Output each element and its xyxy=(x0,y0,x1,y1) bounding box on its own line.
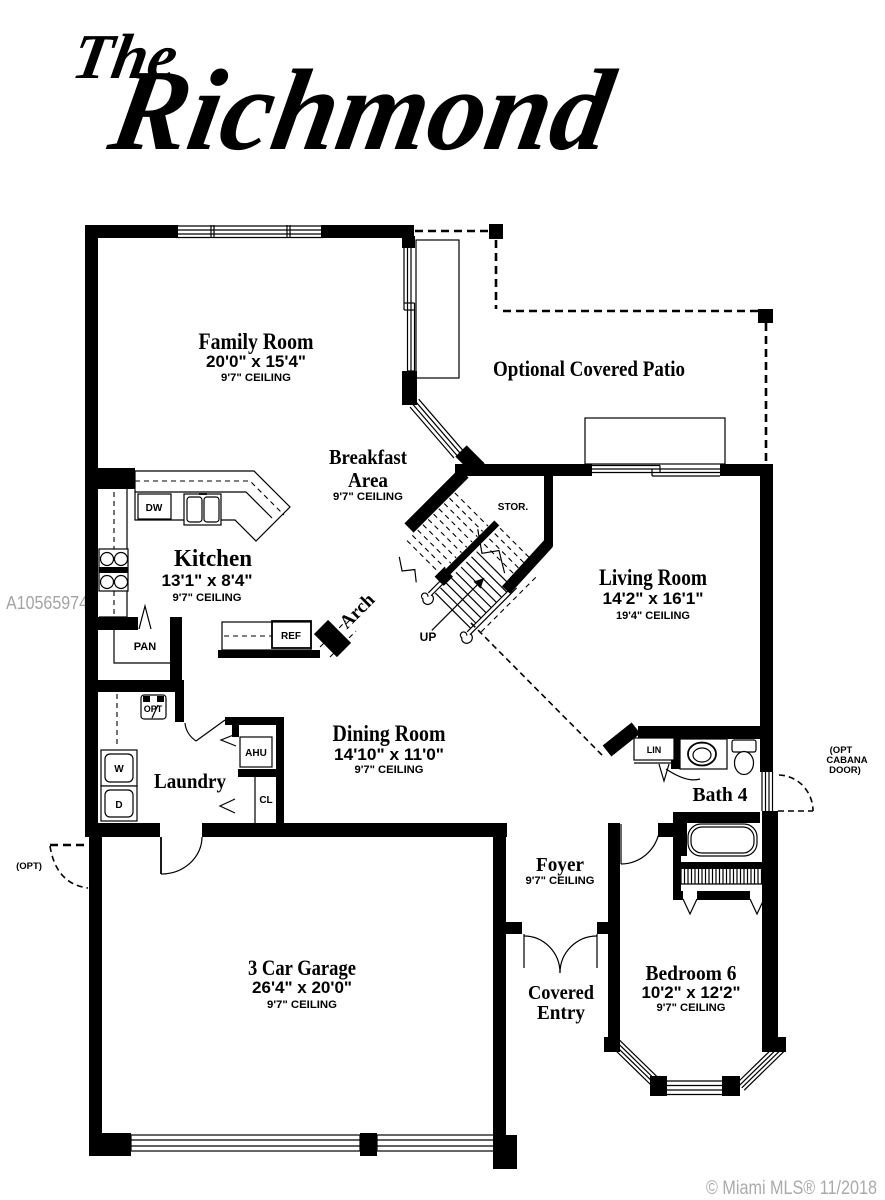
svg-text:9'7" CEILING: 9'7" CEILING xyxy=(267,999,337,1011)
svg-text:CL: CL xyxy=(259,795,272,806)
svg-text:Laundry: Laundry xyxy=(154,769,226,793)
svg-text:14'10" x 11'0": 14'10" x 11'0" xyxy=(334,745,444,764)
svg-text:D: D xyxy=(115,800,122,811)
svg-text:Area: Area xyxy=(348,468,388,492)
svg-text:© Miami MLS® 11/2018: © Miami MLS® 11/2018 xyxy=(706,1178,877,1199)
svg-text:LIN: LIN xyxy=(647,745,662,755)
svg-text:Entry: Entry xyxy=(537,1002,585,1024)
svg-text:OPT: OPT xyxy=(144,704,163,714)
svg-text:A10565974: A10565974 xyxy=(6,593,88,613)
svg-text:9'7" CEILING: 9'7" CEILING xyxy=(657,1002,726,1014)
svg-text:9'7" CEILING: 9'7" CEILING xyxy=(173,592,242,604)
svg-text:Breakfast: Breakfast xyxy=(329,445,407,469)
svg-text:STOR.: STOR. xyxy=(498,502,529,513)
svg-text:DW: DW xyxy=(146,503,163,514)
svg-text:AHU: AHU xyxy=(245,748,267,759)
svg-text:Bath 4: Bath 4 xyxy=(693,784,748,806)
svg-text:13'1" x 8'4": 13'1" x 8'4" xyxy=(162,571,253,590)
svg-text:DOOR): DOOR) xyxy=(829,765,861,776)
svg-text:Bedroom 6: Bedroom 6 xyxy=(646,961,737,985)
svg-text:14'2" x 16'1": 14'2" x 16'1" xyxy=(603,589,704,608)
svg-text:Living Room: Living Room xyxy=(599,565,707,590)
svg-text:UP: UP xyxy=(420,630,437,644)
svg-text:(OPT): (OPT) xyxy=(16,861,42,872)
svg-text:10'2" x 12'2": 10'2" x 12'2" xyxy=(642,983,741,1002)
svg-text:9'7" CEILING: 9'7" CEILING xyxy=(333,491,403,503)
svg-text:3 Car Garage: 3 Car Garage xyxy=(248,955,356,980)
svg-text:26'4" x 20'0": 26'4" x 20'0" xyxy=(252,978,352,997)
svg-text:9'7" CEILING: 9'7" CEILING xyxy=(355,764,424,776)
svg-text:Kitchen: Kitchen xyxy=(174,546,252,572)
svg-text:W: W xyxy=(114,764,124,775)
svg-text:Richmond: Richmond xyxy=(100,47,623,175)
svg-text:Dining Room: Dining Room xyxy=(333,721,446,746)
svg-text:Optional Covered Patio: Optional Covered Patio xyxy=(493,356,685,381)
svg-text:19'4" CEILING: 19'4" CEILING xyxy=(616,610,690,622)
svg-text:20'0" x 15'4": 20'0" x 15'4" xyxy=(206,352,306,371)
svg-text:Family Room: Family Room xyxy=(199,329,314,354)
svg-text:PAN: PAN xyxy=(134,641,156,653)
svg-text:REF: REF xyxy=(281,631,301,642)
svg-text:Foyer: Foyer xyxy=(536,854,584,876)
svg-text:Covered: Covered xyxy=(528,982,594,1004)
svg-text:9'7" CEILING: 9'7" CEILING xyxy=(221,372,291,384)
svg-text:9'7" CEILING: 9'7" CEILING xyxy=(526,875,595,887)
